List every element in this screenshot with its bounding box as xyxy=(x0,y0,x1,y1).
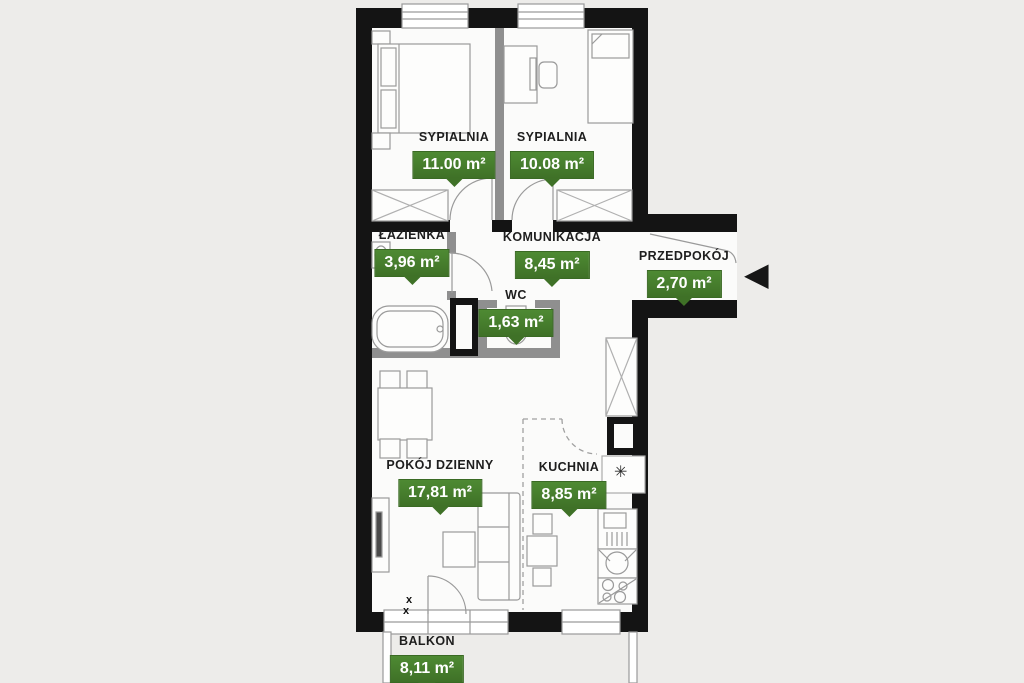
room-label: WC xyxy=(505,288,527,303)
room-area-badge: 2,70 m² xyxy=(646,270,721,298)
room-sypialnia-1: SYPIALNIA 11.00 m² xyxy=(412,130,495,179)
room-area-badge: 8,45 m² xyxy=(514,251,589,279)
room-pokoj-dzienny: POKÓJ DZIENNY 17,81 m² xyxy=(386,458,493,507)
room-przedpokoj: PRZEDPOKÓJ 2,70 m² xyxy=(639,249,729,298)
room-area-badge: 8,85 m² xyxy=(531,481,606,509)
room-area-badge: 1,63 m² xyxy=(478,309,553,337)
room-sypialnia-2: SYPIALNIA 10.08 m² xyxy=(510,130,594,179)
room-komunikacja: KOMUNIKACJA 8,45 m² xyxy=(503,230,601,279)
room-area-badge: 17,81 m² xyxy=(398,479,482,507)
room-lazienka: ŁAZIENKA 3,96 m² xyxy=(374,228,449,277)
room-wc: WC 1,63 m² xyxy=(478,288,553,337)
room-balkon: BALKON 8,11 m² xyxy=(390,634,464,683)
room-label: PRZEDPOKÓJ xyxy=(639,249,729,264)
room-area-badge: 3,96 m² xyxy=(374,249,449,277)
room-label: SYPIALNIA xyxy=(419,130,489,145)
room-label: ŁAZIENKA xyxy=(379,228,445,243)
room-label: KUCHNIA xyxy=(539,460,599,475)
apartment-floor-plan: SYPIALNIA 11.00 m² SYPIALNIA 10.08 m² ŁA… xyxy=(0,0,1024,683)
room-area-badge: 11.00 m² xyxy=(412,151,495,179)
room-label: KOMUNIKACJA xyxy=(503,230,601,245)
room-area-badge: 8,11 m² xyxy=(390,655,464,683)
room-label: POKÓJ DZIENNY xyxy=(386,458,493,473)
vent-icon: ✳ xyxy=(614,465,627,481)
room-label: SYPIALNIA xyxy=(517,130,587,145)
door-mark-icon: x xyxy=(403,606,409,617)
entrance-arrow-icon: ◀ xyxy=(744,258,769,290)
room-area-badge: 10.08 m² xyxy=(510,151,594,179)
room-kuchnia: KUCHNIA 8,85 m² xyxy=(531,460,606,509)
room-label: BALKON xyxy=(399,634,455,649)
